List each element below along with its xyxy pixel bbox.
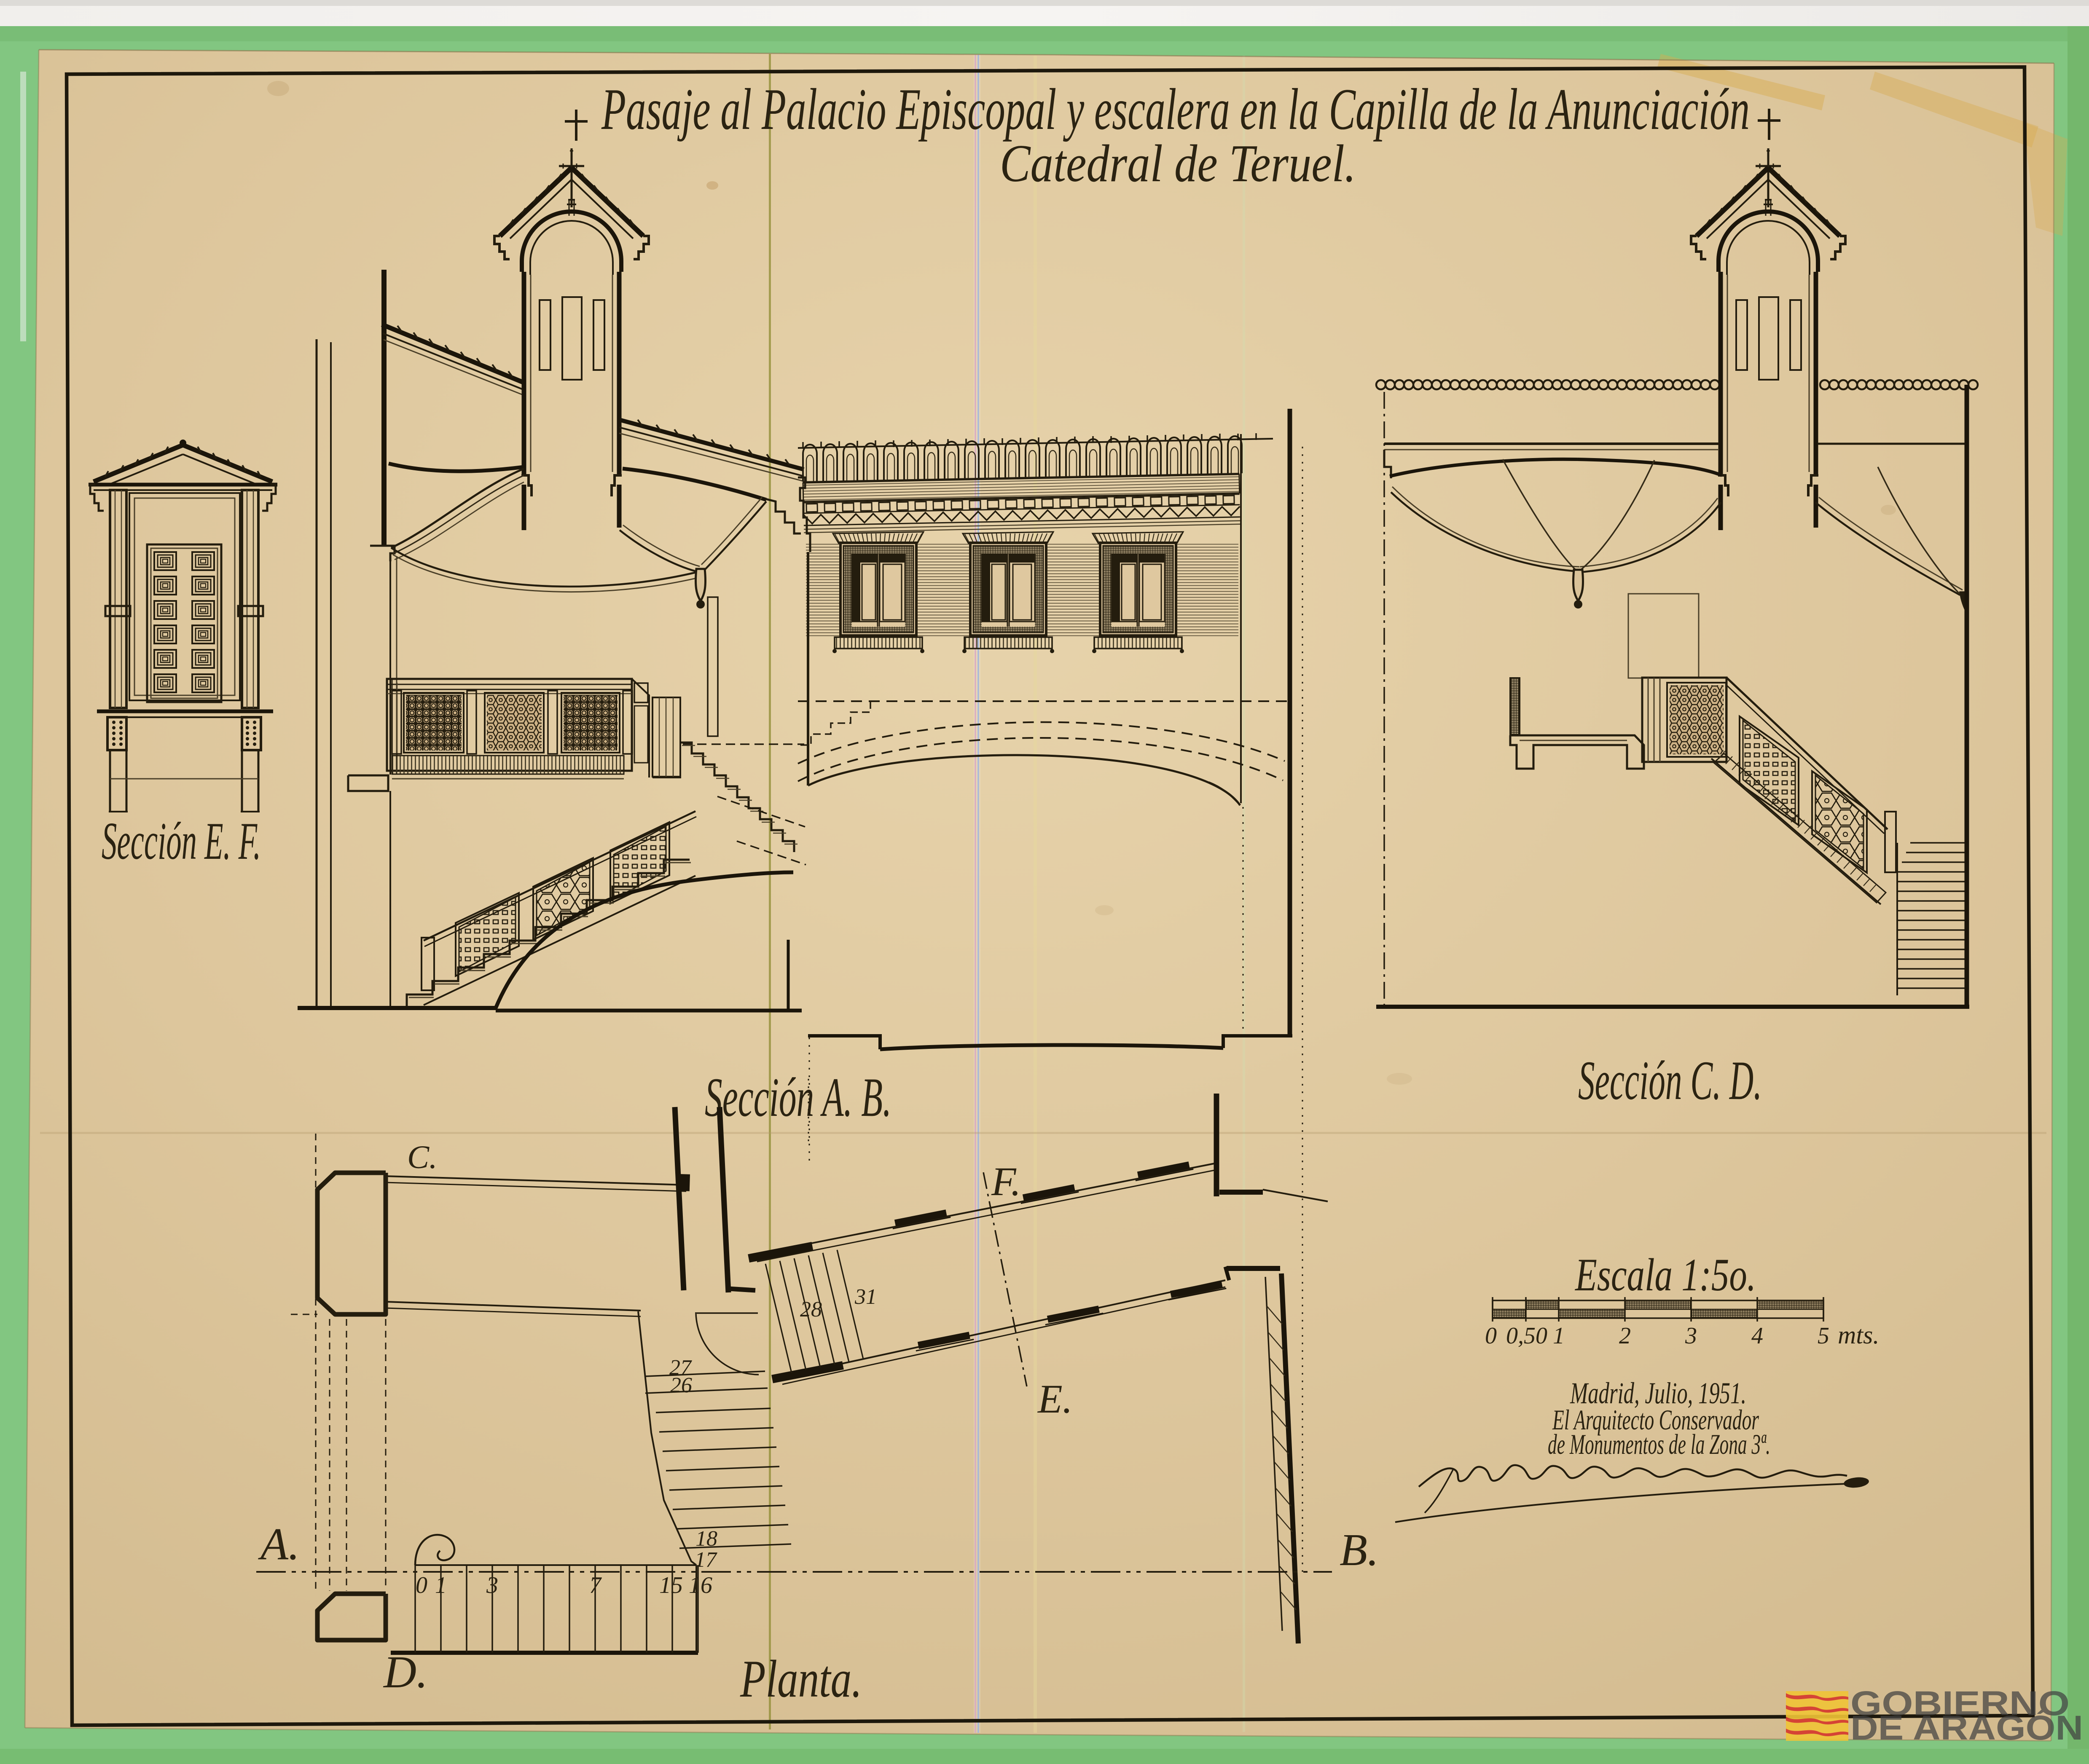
svg-text:Sección E. F.: Sección E. F. [102,812,261,871]
svg-text:Catedral de Teruel.: Catedral de Teruel. [1000,134,1356,193]
svg-text:de Monumentos de la Zona 3ª.: de Monumentos de la Zona 3ª. [1548,1428,1770,1460]
svg-text:16: 16 [689,1572,712,1598]
svg-text:C.: C. [407,1139,438,1175]
svg-text:31: 31 [854,1285,877,1309]
svg-text:0,50: 0,50 [1506,1323,1547,1349]
svg-text:28: 28 [800,1298,822,1322]
svg-text:Sección A. B.: Sección A. B. [705,1066,891,1128]
svg-text:17: 17 [695,1548,717,1572]
svg-text:Pasaje al Palacio Episcopal y: Pasaje al Palacio Episcopal y escalera e… [601,77,1750,142]
svg-text:0: 0 [1485,1323,1497,1349]
svg-text:Escala 1:5o.: Escala 1:5o. [1574,1249,1756,1300]
svg-text:18: 18 [695,1527,717,1551]
svg-text:D.: D. [383,1647,428,1697]
svg-text:3: 3 [486,1572,498,1598]
svg-text:DE ARAGÓN: DE ARAGÓN [1850,1709,2083,1747]
svg-text:7: 7 [589,1572,602,1598]
svg-text:F.: F. [991,1159,1021,1204]
svg-text:0: 0 [416,1572,427,1598]
svg-text:1: 1 [435,1572,447,1598]
svg-text:Sección C. D.: Sección C. D. [1578,1049,1762,1111]
svg-text:3: 3 [1685,1323,1697,1349]
svg-text:B.: B. [1340,1525,1379,1575]
svg-text:4: 4 [1751,1323,1763,1349]
svg-text:15: 15 [659,1572,683,1598]
svg-text:A.: A. [258,1519,300,1569]
svg-text:1: 1 [1553,1323,1565,1349]
svg-text:26: 26 [670,1373,692,1397]
svg-text:5: 5 [1818,1323,1829,1349]
svg-text:2: 2 [1619,1323,1631,1349]
svg-text:E.: E. [1037,1376,1073,1421]
svg-text:Planta.: Planta. [740,1650,862,1708]
svg-text:mts.: mts. [1838,1321,1879,1349]
